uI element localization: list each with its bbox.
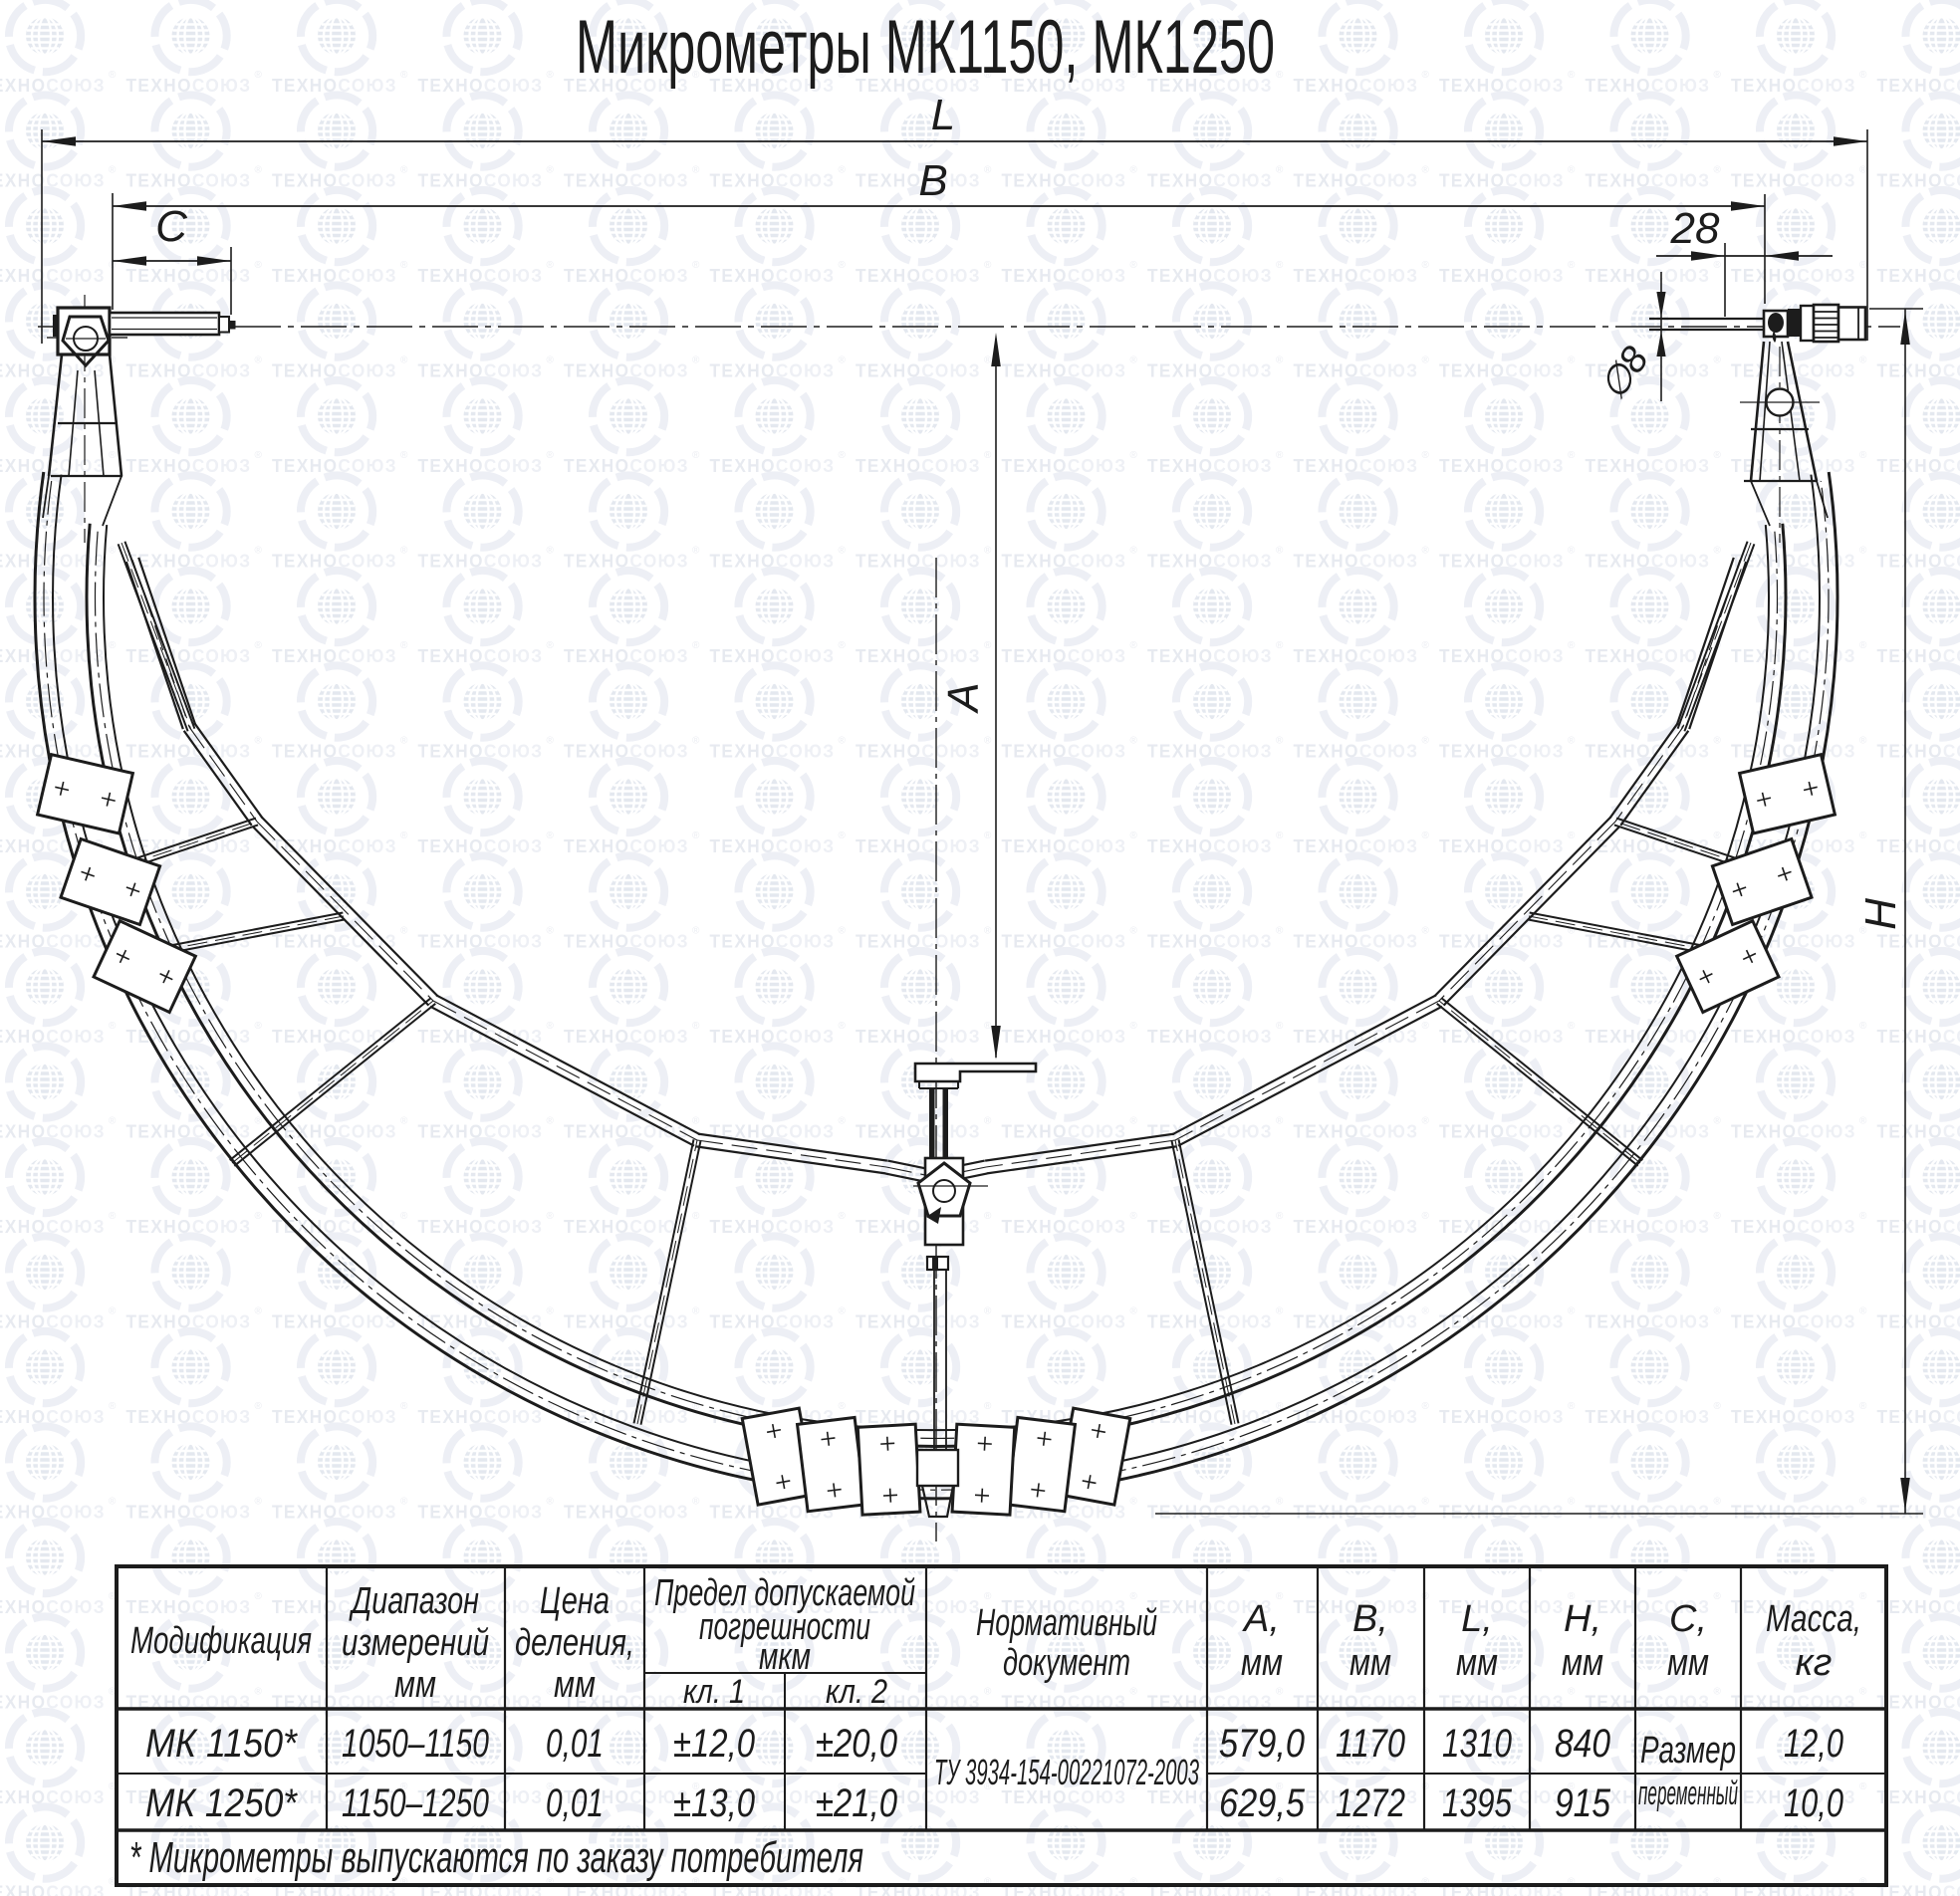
svg-text:мм: мм <box>1456 1642 1498 1684</box>
svg-text:10,0: 10,0 <box>1784 1781 1843 1825</box>
svg-text:A: A <box>939 682 988 714</box>
svg-text:12,0: 12,0 <box>1784 1722 1843 1766</box>
svg-text:Модификация: Модификация <box>130 1620 312 1662</box>
svg-text:мм: мм <box>1349 1642 1391 1684</box>
svg-text:Цена: Цена <box>540 1580 610 1622</box>
svg-text:±13,0: ±13,0 <box>673 1781 755 1825</box>
svg-text:деления,: деления, <box>515 1622 634 1664</box>
svg-text:Масса,: Масса, <box>1766 1598 1861 1640</box>
svg-text:ТУ 3934-154-00221072-2003: ТУ 3934-154-00221072-2003 <box>934 1752 1199 1792</box>
svg-text:измерений: измерений <box>342 1622 489 1664</box>
svg-text:±21,0: ±21,0 <box>816 1781 897 1825</box>
svg-text:документ: документ <box>1003 1642 1130 1684</box>
svg-text:579,0: 579,0 <box>1219 1722 1305 1766</box>
svg-text:28: 28 <box>1670 204 1720 253</box>
svg-text:1150–1250: 1150–1250 <box>342 1781 489 1825</box>
svg-text:1050–1150: 1050–1150 <box>342 1722 489 1766</box>
svg-text:L,: L, <box>1461 1598 1493 1640</box>
svg-text:915: 915 <box>1555 1781 1611 1825</box>
svg-text:C: C <box>155 202 188 251</box>
svg-text:мм: мм <box>554 1664 596 1706</box>
svg-text:±12,0: ±12,0 <box>673 1722 755 1766</box>
svg-text:В,: В, <box>1352 1598 1388 1640</box>
svg-text:мм: мм <box>394 1664 436 1706</box>
svg-text:629,5: 629,5 <box>1219 1781 1306 1825</box>
svg-text:840: 840 <box>1555 1722 1610 1766</box>
svg-text:±20,0: ±20,0 <box>816 1722 897 1766</box>
svg-text:H: H <box>1856 898 1905 930</box>
svg-text:Нормативный: Нормативный <box>976 1602 1157 1644</box>
svg-text:Микрометры МК1150, МК1250: Микрометры МК1150, МК1250 <box>576 5 1275 90</box>
svg-text:1310: 1310 <box>1442 1722 1512 1766</box>
svg-text:* Микрометры выпускаются по за: * Микрометры выпускаются по заказу потре… <box>129 1833 863 1882</box>
svg-text:Н,: Н, <box>1564 1598 1601 1640</box>
svg-text:мм: мм <box>1562 1642 1603 1684</box>
svg-text:С,: С, <box>1669 1598 1707 1640</box>
svg-text:0,01: 0,01 <box>546 1781 604 1825</box>
svg-text:Размер: Размер <box>1640 1730 1736 1772</box>
svg-text:L: L <box>931 91 955 139</box>
svg-text:кл. 2: кл. 2 <box>826 1673 887 1711</box>
svg-text:МК 1250*: МК 1250* <box>145 1781 298 1825</box>
svg-text:переменный: переменный <box>1638 1775 1738 1812</box>
svg-text:МК 1150*: МК 1150* <box>145 1722 298 1766</box>
svg-text:B: B <box>918 156 947 205</box>
svg-text:мкм: мкм <box>759 1636 811 1678</box>
svg-text:1395: 1395 <box>1442 1781 1513 1825</box>
svg-text:мм: мм <box>1667 1642 1709 1684</box>
svg-text:кг: кг <box>1796 1642 1833 1684</box>
svg-text:Диапазон: Диапазон <box>349 1580 479 1622</box>
svg-text:кл. 1: кл. 1 <box>683 1673 745 1711</box>
svg-text:мм: мм <box>1241 1642 1283 1684</box>
svg-text:1170: 1170 <box>1336 1722 1405 1766</box>
svg-text:1272: 1272 <box>1336 1781 1405 1825</box>
svg-text:А,: А, <box>1242 1598 1280 1640</box>
svg-text:0,01: 0,01 <box>546 1722 604 1766</box>
